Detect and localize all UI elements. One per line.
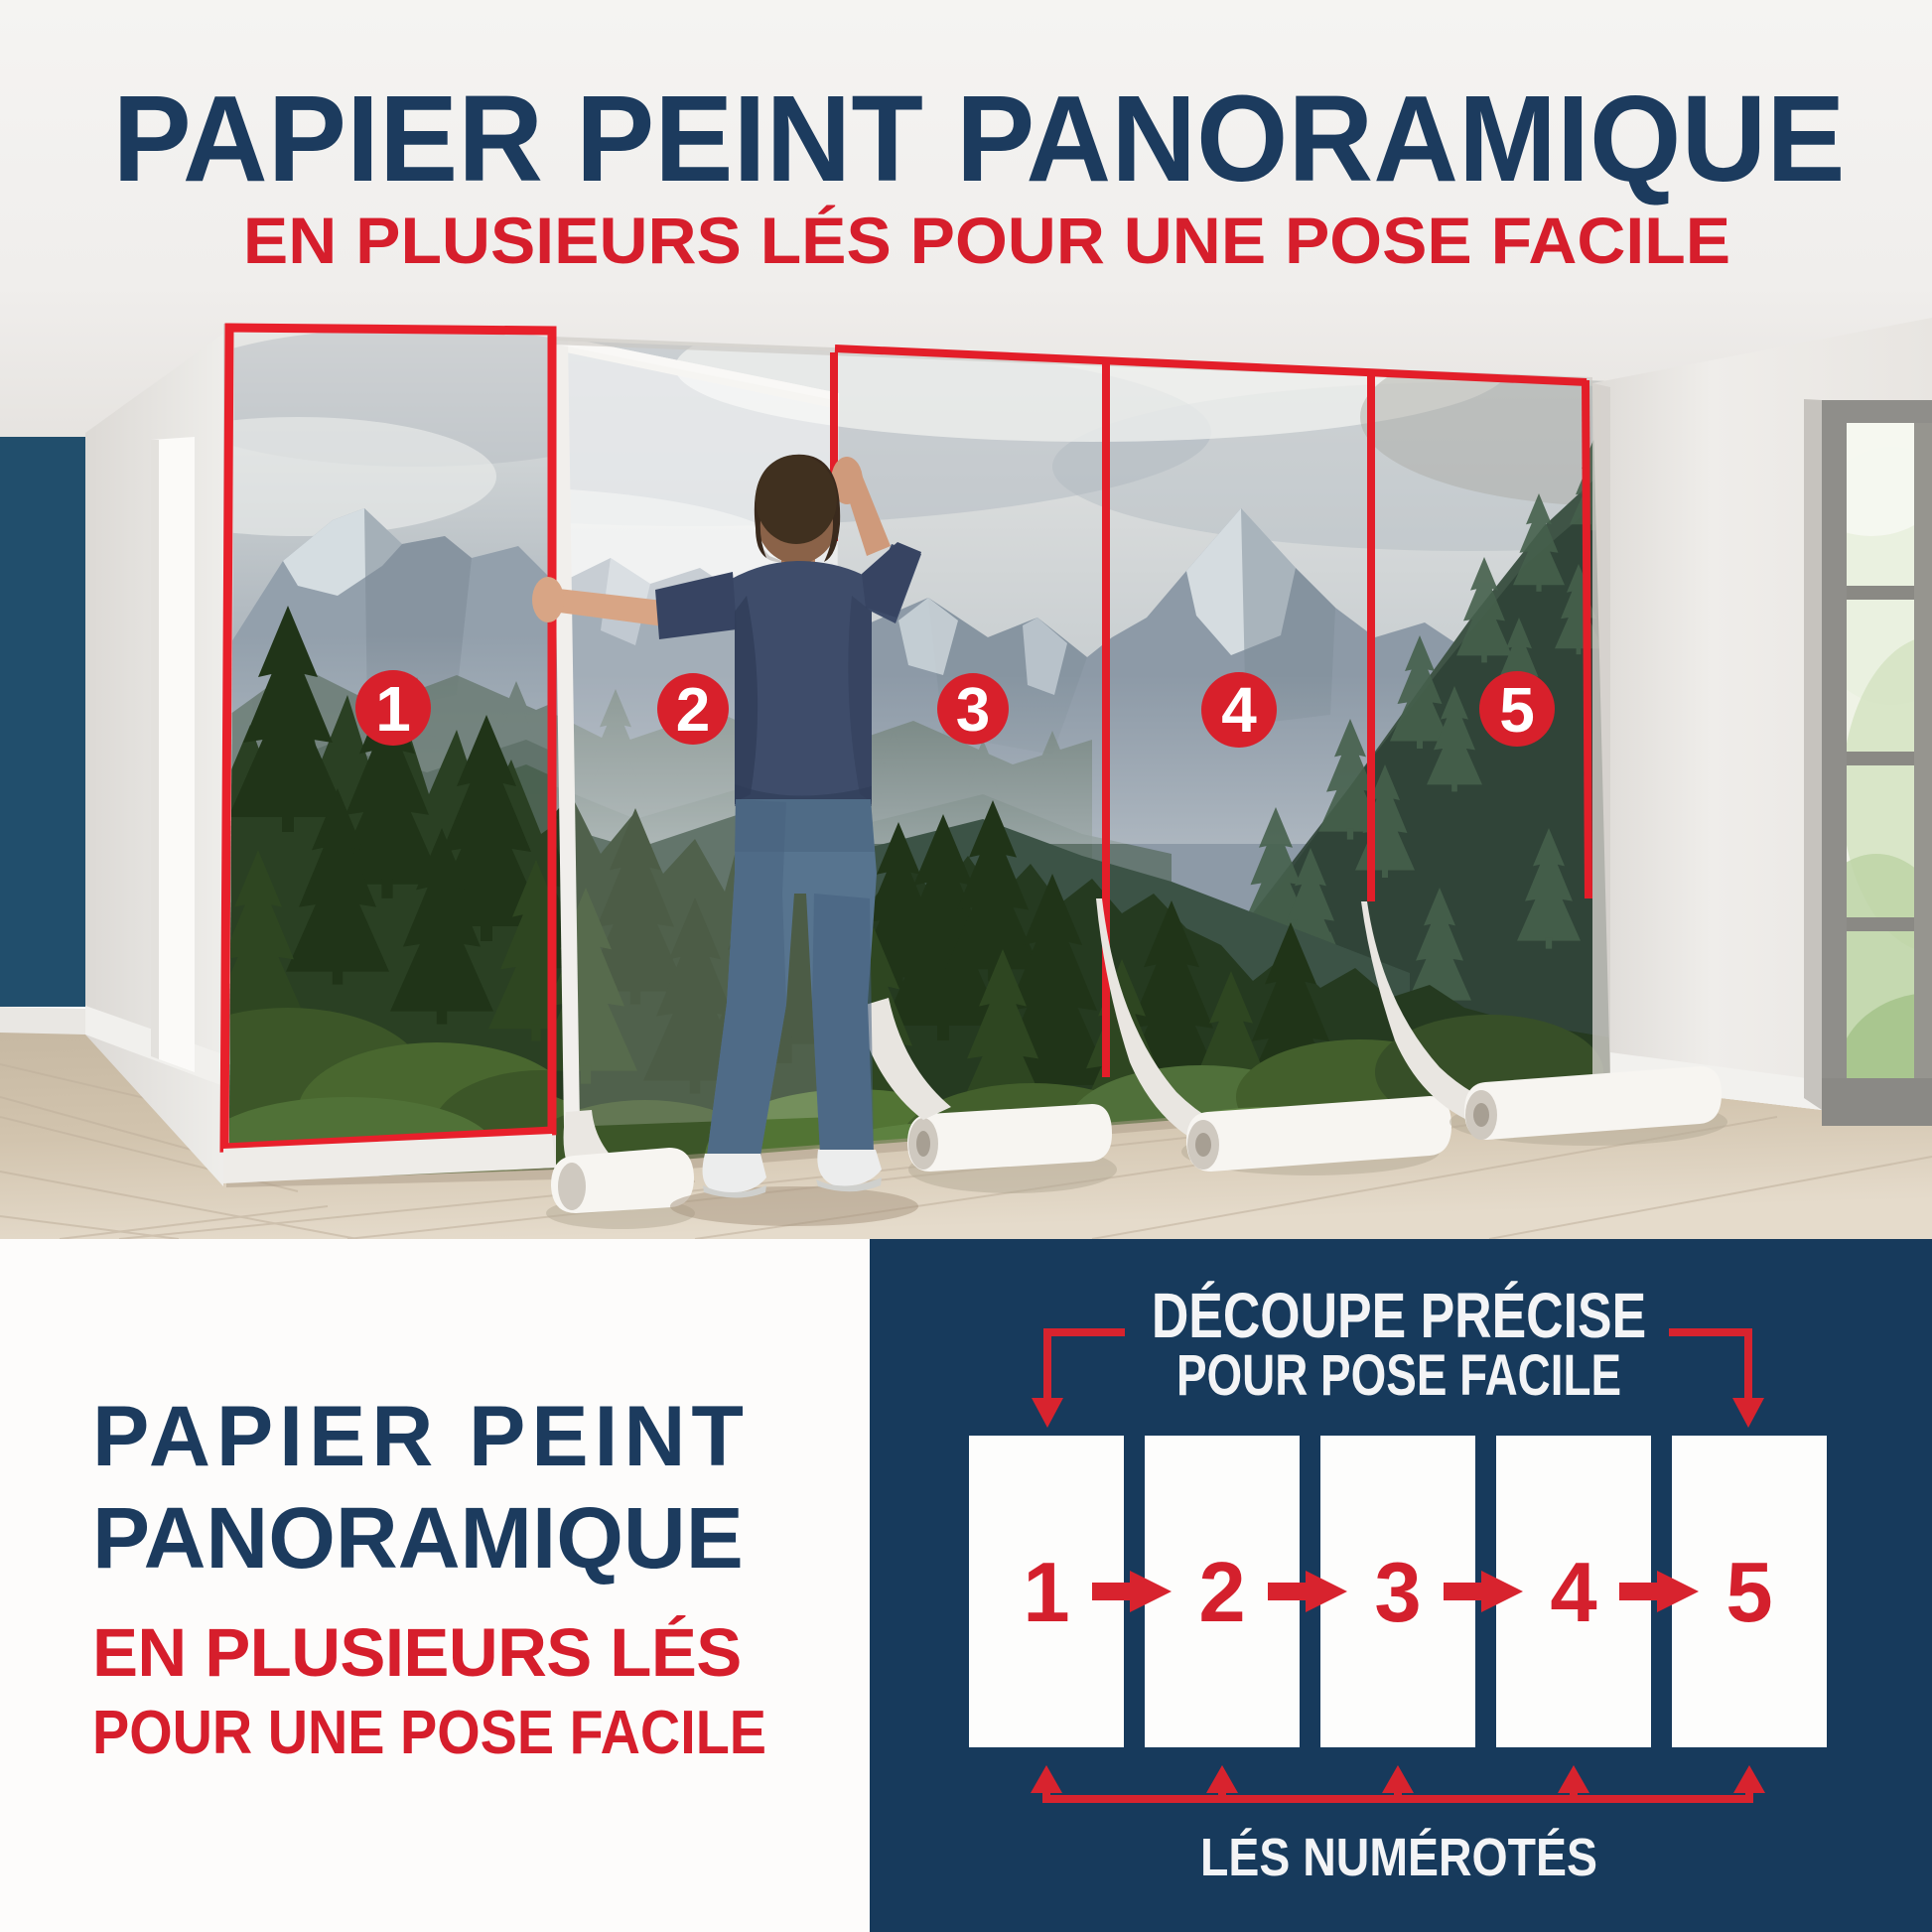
svg-text:2: 2 — [1198, 1546, 1245, 1640]
svg-text:3: 3 — [1374, 1546, 1421, 1640]
svg-text:1: 1 — [1023, 1546, 1069, 1640]
svg-text:3: 3 — [956, 676, 990, 745]
svg-text:1: 1 — [375, 673, 411, 745]
svg-text:4: 4 — [1550, 1546, 1596, 1640]
svg-text:2: 2 — [676, 676, 710, 745]
svg-text:4: 4 — [1221, 674, 1257, 746]
svg-text:5: 5 — [1725, 1546, 1772, 1640]
svg-text:5: 5 — [1499, 674, 1535, 746]
